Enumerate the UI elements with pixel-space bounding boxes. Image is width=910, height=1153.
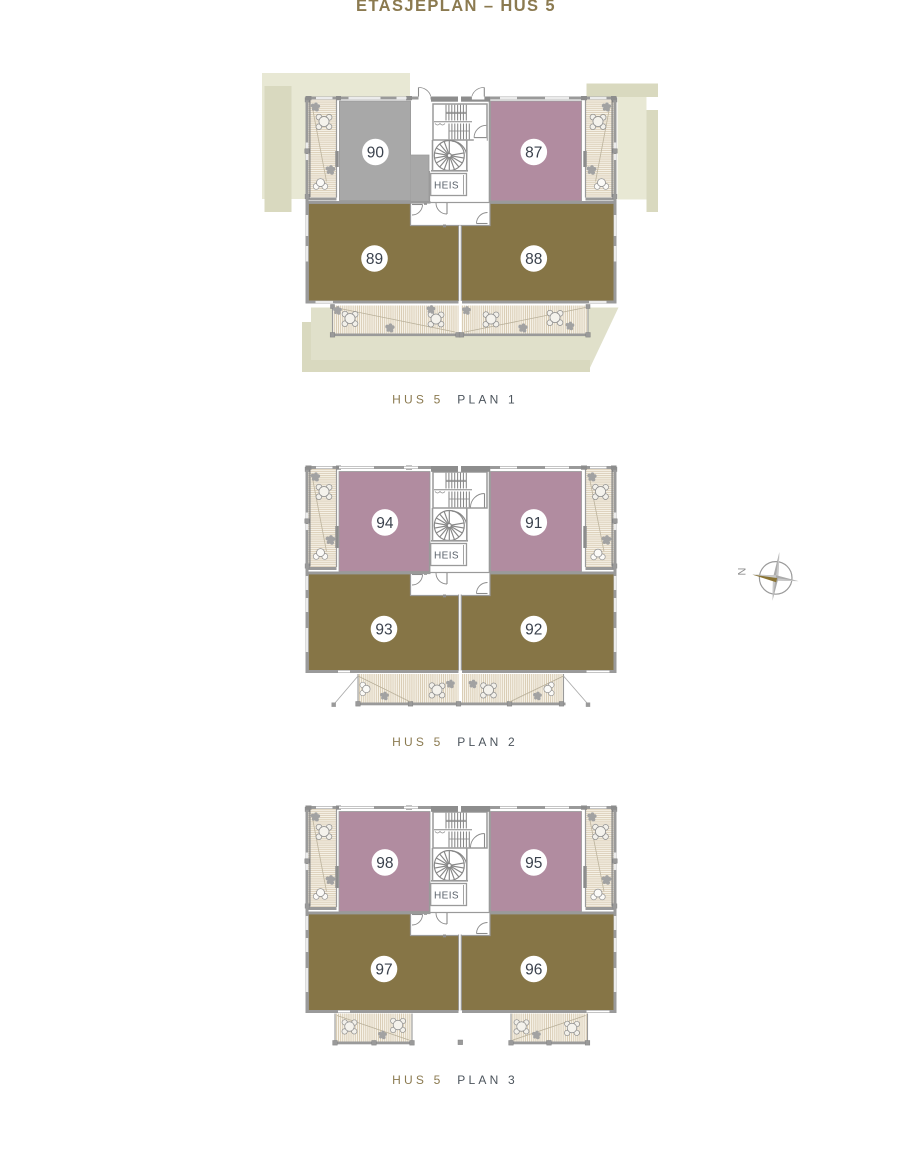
svg-text:96: 96 <box>525 961 542 978</box>
svg-text:95: 95 <box>525 855 542 872</box>
svg-text:88: 88 <box>525 251 542 268</box>
svg-text:HUS 5: HUS 5 <box>392 393 443 407</box>
svg-text:HUS 5: HUS 5 <box>392 1073 443 1087</box>
svg-text:HEIS: HEIS <box>434 891 459 902</box>
svg-text:HEIS: HEIS <box>434 181 459 192</box>
svg-text:HUS 5: HUS 5 <box>392 735 443 749</box>
svg-text:HEIS: HEIS <box>434 551 459 562</box>
svg-text:94: 94 <box>376 515 394 532</box>
svg-text:97: 97 <box>375 961 392 978</box>
svg-text:90: 90 <box>367 144 385 161</box>
svg-text:ETASJEPLAN – HUS 5: ETASJEPLAN – HUS 5 <box>356 0 556 15</box>
svg-text:93: 93 <box>375 621 392 638</box>
svg-text:PLAN 1: PLAN 1 <box>457 393 518 407</box>
svg-text:89: 89 <box>366 251 383 268</box>
svg-text:PLAN 3: PLAN 3 <box>457 1073 518 1087</box>
svg-text:PLAN 2: PLAN 2 <box>457 735 518 749</box>
svg-text:92: 92 <box>525 621 542 638</box>
svg-text:87: 87 <box>525 144 542 161</box>
svg-text:N: N <box>737 567 749 575</box>
svg-text:98: 98 <box>376 855 393 872</box>
svg-text:91: 91 <box>525 515 542 532</box>
